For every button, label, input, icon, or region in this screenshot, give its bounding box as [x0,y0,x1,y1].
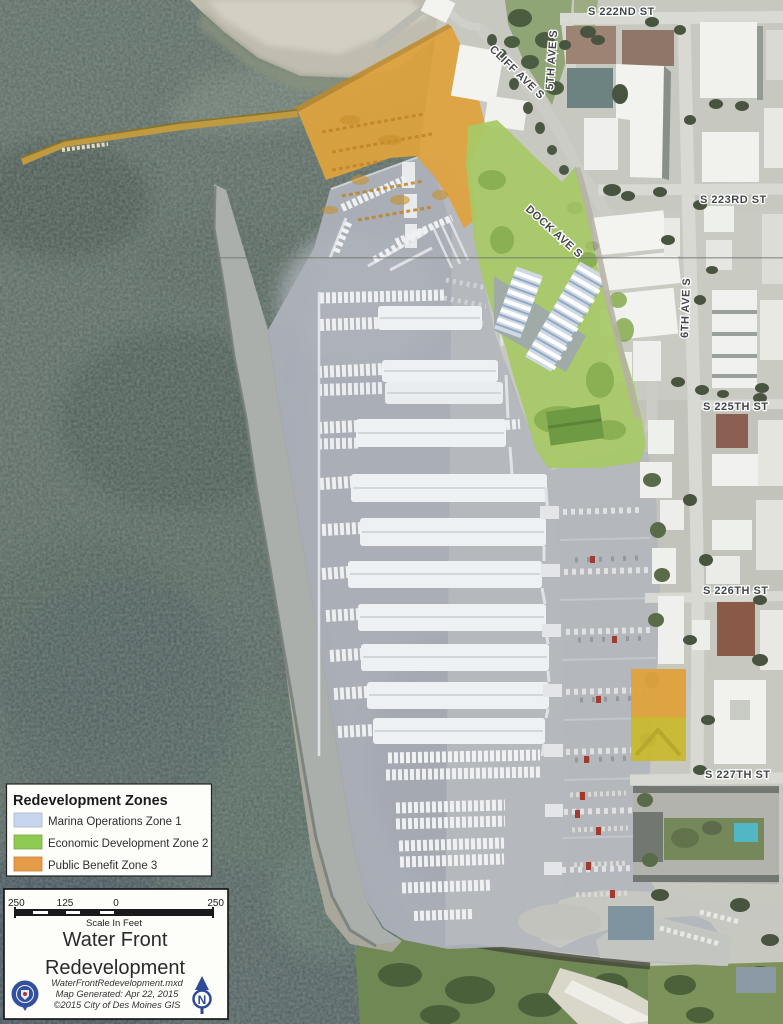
svg-text:Water Front: Water Front [63,929,168,951]
svg-text:Marina Operations Zone 1: Marina Operations Zone 1 [48,816,182,828]
svg-text:S 226TH ST: S 226TH ST [703,585,769,597]
svg-text:Economic Development Zone 2: Economic Development Zone 2 [48,838,208,850]
svg-text:S 223RD ST: S 223RD ST [700,194,767,206]
svg-text:250: 250 [8,898,25,909]
svg-text:250: 250 [207,898,224,909]
svg-text:Redevelopment Zones: Redevelopment Zones [13,793,168,809]
svg-text:6TH AVE S: 6TH AVE S [679,278,693,339]
svg-text:N: N [198,993,207,1007]
svg-text:WaterFrontRedevelopment.mxd: WaterFrontRedevelopment.mxd [51,978,183,988]
svg-text:125: 125 [57,898,74,909]
svg-text:Public Benefit Zone 3: Public Benefit Zone 3 [48,860,157,872]
svg-text:Map Generated: Apr 22, 2015: Map Generated: Apr 22, 2015 [56,989,179,999]
svg-text:S 225TH ST: S 225TH ST [703,401,769,413]
svg-text:©2015 City of Des Moines GIS: ©2015 City of Des Moines GIS [54,1000,182,1010]
svg-text:S 222ND ST: S 222ND ST [588,6,655,18]
svg-text:Scale In Feet: Scale In Feet [86,918,142,929]
svg-text:0: 0 [113,898,119,909]
svg-text:Redevelopment: Redevelopment [45,957,186,979]
svg-text:S 227TH ST: S 227TH ST [705,769,771,781]
